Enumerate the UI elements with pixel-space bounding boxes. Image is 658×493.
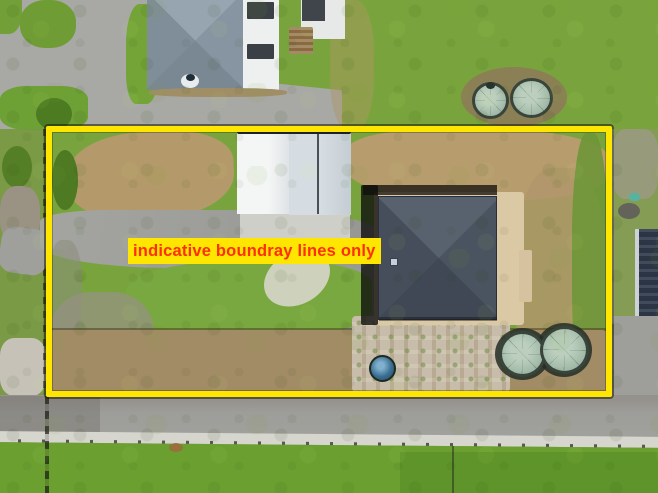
outbuilding — [639, 229, 658, 323]
roof-vent-dark — [186, 74, 195, 81]
dark-rocks — [618, 203, 640, 219]
garden-bed — [149, 88, 287, 97]
solar-panel-icon — [247, 44, 274, 59]
boundary-disclaimer-label: indicative boundray lines only — [128, 238, 381, 264]
fence-post-line-south-west — [45, 396, 49, 493]
fence-line-east — [612, 129, 614, 324]
water-tank-north-2 — [510, 78, 553, 118]
rock-pile — [0, 338, 46, 396]
aerial-photo: indicative boundray lines only — [0, 0, 658, 493]
teal-object — [629, 193, 640, 201]
picnic-table — [289, 27, 313, 54]
grass-patch — [20, 0, 76, 48]
fence-post-line-south-mid — [452, 446, 454, 493]
bush — [2, 146, 32, 188]
verge-dark-overlay — [400, 452, 658, 493]
solar-panel-icon — [302, 0, 325, 21]
brown-object — [169, 443, 183, 452]
rock-pile — [612, 129, 658, 199]
tank-lid — [486, 82, 495, 89]
east-driveway — [612, 316, 658, 398]
solar-panel-icon — [247, 2, 274, 19]
